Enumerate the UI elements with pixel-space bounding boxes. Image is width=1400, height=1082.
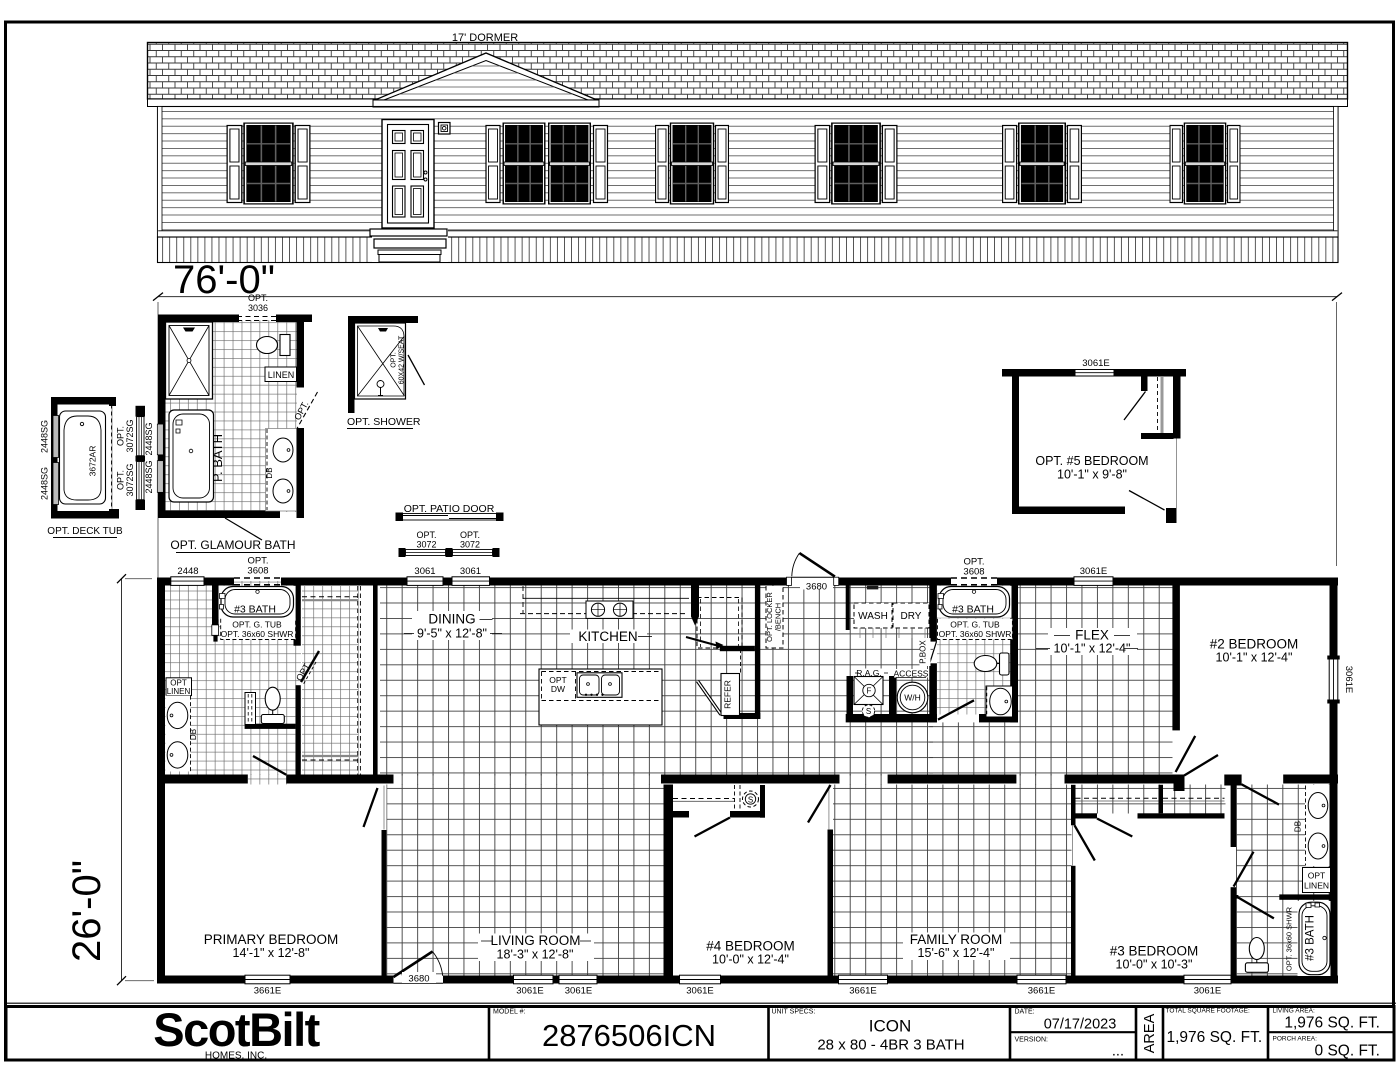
svg-text:3061: 3061	[414, 566, 435, 577]
svg-text:#4 BEDROOM: #4 BEDROOM	[706, 939, 795, 954]
svg-text:2876506ICN: 2876506ICN	[542, 1018, 716, 1053]
svg-text:3061E: 3061E	[1343, 666, 1354, 693]
svg-text:LIVING AREA:: LIVING AREA:	[1273, 1008, 1315, 1015]
svg-text:OPT.: OPT.	[248, 293, 268, 303]
svg-text:18'-3" x 12'-8": 18'-3" x 12'-8"	[497, 948, 574, 962]
svg-text:FAMILY ROOM: FAMILY ROOM	[910, 932, 1003, 947]
svg-text:OPT.: OPT.	[116, 426, 126, 446]
svg-text:#3 BEDROOM: #3 BEDROOM	[1110, 944, 1199, 959]
svg-text:07/17/2023: 07/17/2023	[1044, 1017, 1117, 1033]
svg-text:2448SG: 2448SG	[40, 467, 50, 500]
svg-text:DB: DB	[1294, 821, 1303, 832]
svg-text:26'-0": 26'-0"	[65, 860, 109, 962]
svg-text:10'-1" x 12'-4": 10'-1" x 12'-4"	[1054, 642, 1131, 656]
svg-text:3680: 3680	[408, 974, 429, 985]
svg-text:OPT. 36x60 SHWR: OPT. 36x60 SHWR	[221, 629, 294, 639]
svg-text:1,976 SQ. FT.: 1,976 SQ. FT.	[1167, 1029, 1263, 1046]
svg-text:3608: 3608	[963, 567, 984, 578]
svg-text:17' DORMER: 17' DORMER	[452, 32, 518, 44]
svg-text:10'-1" x 9'-8": 10'-1" x 9'-8"	[1057, 468, 1127, 482]
svg-text:DATE:: DATE:	[1015, 1009, 1035, 1016]
svg-text:PORCH AREA:: PORCH AREA:	[1273, 1036, 1318, 1043]
svg-text:ACCESS: ACCESS	[894, 669, 929, 679]
svg-text:/BENCH: /BENCH	[774, 603, 783, 631]
svg-text:#2 BEDROOM: #2 BEDROOM	[1210, 637, 1299, 652]
svg-text:2448SG: 2448SG	[144, 460, 154, 493]
svg-text:28 x 80 - 4BR 3 BATH: 28 x 80 - 4BR 3 BATH	[817, 1037, 964, 1054]
svg-text:REFER: REFER	[723, 680, 733, 709]
svg-text:DRY: DRY	[901, 611, 922, 622]
svg-text:#3 BATH: #3 BATH	[1305, 915, 1317, 961]
svg-text:OPT: OPT	[1308, 871, 1325, 881]
svg-text:3061E: 3061E	[1082, 358, 1109, 369]
svg-text:OPT. DECK TUB: OPT. DECK TUB	[47, 526, 123, 537]
svg-text:15'-6" x 12'-4": 15'-6" x 12'-4"	[918, 946, 995, 960]
svg-text:3672AR: 3672AR	[88, 446, 98, 477]
svg-text:3061E: 3061E	[565, 986, 592, 997]
svg-text:3036: 3036	[248, 303, 268, 313]
svg-text:3680: 3680	[806, 582, 827, 593]
svg-text:OPT.: OPT.	[416, 530, 436, 540]
svg-text:S: S	[748, 796, 753, 805]
svg-text:HOMES, INC.: HOMES, INC.	[205, 1051, 267, 1062]
svg-text:3072SG: 3072SG	[125, 419, 135, 452]
svg-text:DINING: DINING	[428, 612, 475, 627]
svg-text:OPT. SHOWER: OPT. SHOWER	[347, 416, 421, 428]
svg-text:AREA: AREA	[1142, 1013, 1158, 1053]
svg-text:2448SG: 2448SG	[40, 420, 50, 453]
svg-text:LIVING ROOM: LIVING ROOM	[490, 933, 580, 948]
svg-text:...: ...	[1112, 1044, 1124, 1060]
svg-text:OPT. 36x60 SHWR: OPT. 36x60 SHWR	[1285, 906, 1294, 971]
svg-text:KITCHEN: KITCHEN	[578, 629, 637, 644]
svg-text:OPT. G. TUB: OPT. G. TUB	[950, 620, 1000, 630]
svg-text:1,976 SQ. FT.: 1,976 SQ. FT.	[1284, 1015, 1380, 1032]
svg-text:TOTAL SQUARE FOOTAGE:: TOTAL SQUARE FOOTAGE:	[1166, 1008, 1250, 1015]
svg-text:DB: DB	[265, 467, 274, 478]
svg-text:OPT. 36x60 SHWR: OPT. 36x60 SHWR	[939, 629, 1012, 639]
svg-text:OPT. #5 BEDROOM: OPT. #5 BEDROOM	[1035, 454, 1148, 468]
svg-text:DB: DB	[189, 729, 198, 740]
svg-text:2448SG: 2448SG	[144, 422, 154, 455]
svg-text:LINEN: LINEN	[167, 687, 191, 696]
svg-text:60X42 W/SEAT: 60X42 W/SEAT	[399, 335, 406, 384]
svg-text:LINEN: LINEN	[1304, 881, 1329, 891]
svg-text:10'-0" x 10'-3": 10'-0" x 10'-3"	[1116, 958, 1193, 972]
svg-text:W/H: W/H	[904, 693, 921, 703]
svg-text:3072: 3072	[416, 540, 436, 550]
svg-text:P.BOX: P.BOX	[919, 640, 928, 664]
svg-text:OPT.: OPT.	[116, 470, 126, 490]
svg-text:F: F	[867, 687, 872, 696]
svg-text:OPT. G. TUB: OPT. G. TUB	[232, 620, 282, 630]
svg-text:14'-1" x 12'-8": 14'-1" x 12'-8"	[233, 946, 310, 960]
svg-text:ICON: ICON	[869, 1017, 912, 1036]
svg-text:3661E: 3661E	[1028, 986, 1055, 997]
svg-text:0 SQ. FT.: 0 SQ. FT.	[1315, 1043, 1380, 1060]
svg-text:ScotBilt: ScotBilt	[153, 1003, 320, 1056]
svg-text:LINEN: LINEN	[268, 370, 295, 380]
svg-text:3661E: 3661E	[849, 986, 876, 997]
svg-text:3608: 3608	[247, 566, 268, 577]
svg-text:OPT.: OPT.	[391, 352, 398, 368]
svg-text:3061: 3061	[460, 566, 481, 577]
svg-text:3061E: 3061E	[1080, 566, 1107, 577]
svg-text:S: S	[866, 707, 871, 716]
svg-text:3061E: 3061E	[516, 986, 543, 997]
svg-text:VERSION:: VERSION:	[1015, 1037, 1049, 1044]
svg-text:MODEL #:: MODEL #:	[493, 1009, 525, 1016]
svg-text:OPT. GLAMOUR BATH: OPT. GLAMOUR BATH	[170, 538, 295, 552]
svg-text:10'-0" x 12'-4": 10'-0" x 12'-4"	[712, 953, 789, 967]
svg-text:9'-5" x 12'-8": 9'-5" x 12'-8"	[417, 627, 487, 641]
svg-text:3061E: 3061E	[686, 986, 713, 997]
svg-text:UNIT SPECS:: UNIT SPECS:	[772, 1009, 816, 1016]
svg-text:OPT.: OPT.	[460, 530, 480, 540]
svg-text:2448: 2448	[177, 566, 198, 577]
svg-text:WASH: WASH	[858, 611, 888, 622]
svg-text:P. BATH: P. BATH	[210, 434, 225, 482]
svg-text:3061E: 3061E	[1194, 986, 1221, 997]
svg-text:10'-1" x 12'-4": 10'-1" x 12'-4"	[1216, 651, 1293, 665]
svg-text:DW: DW	[551, 684, 565, 694]
svg-text:PRIMARY BEDROOM: PRIMARY BEDROOM	[204, 932, 339, 947]
svg-text:3072: 3072	[460, 540, 480, 550]
svg-text:3072SG: 3072SG	[125, 463, 135, 496]
svg-text:FLEX: FLEX	[1075, 628, 1109, 643]
svg-text:3661E: 3661E	[254, 986, 281, 997]
